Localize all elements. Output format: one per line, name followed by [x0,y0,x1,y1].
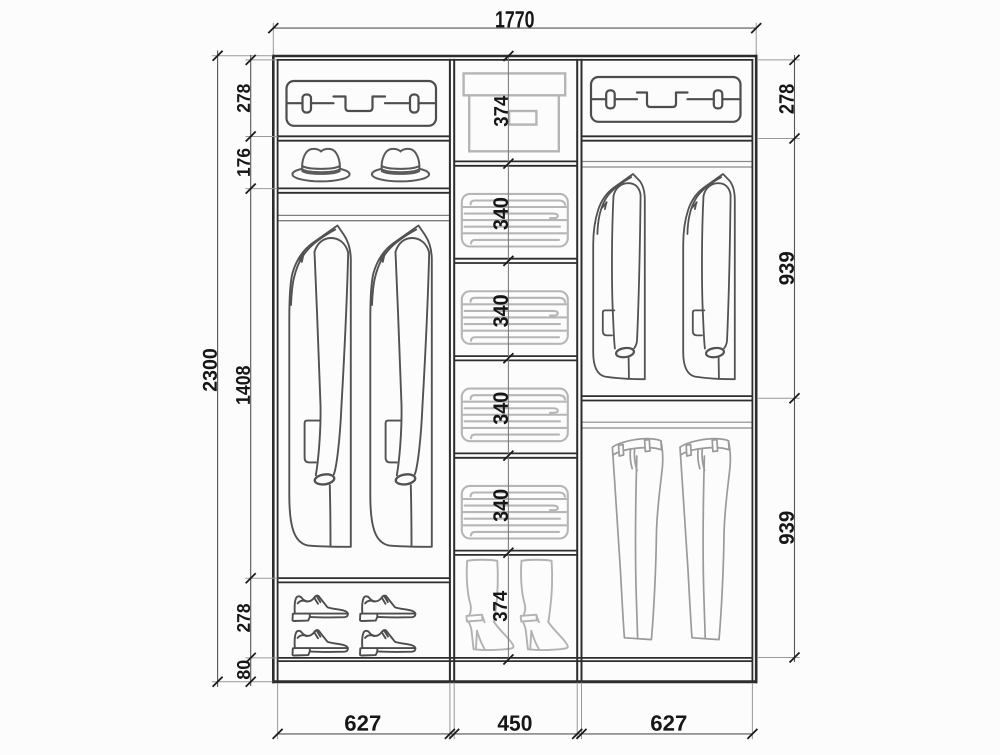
svg-text:374: 374 [491,95,513,127]
svg-text:1770: 1770 [495,6,535,32]
svg-text:627: 627 [650,711,687,736]
svg-text:627: 627 [344,711,381,736]
svg-text:450: 450 [497,711,532,736]
svg-text:1408: 1408 [233,365,255,405]
svg-text:340: 340 [490,489,513,522]
svg-text:939: 939 [776,251,799,285]
svg-text:340: 340 [490,392,513,425]
svg-text:278: 278 [233,603,254,632]
svg-text:278: 278 [776,83,799,114]
svg-text:2300: 2300 [200,348,222,392]
svg-text:80: 80 [233,660,254,680]
svg-text:340: 340 [490,294,513,327]
svg-text:374: 374 [490,590,512,622]
svg-text:278: 278 [233,84,254,113]
svg-text:939: 939 [776,511,799,545]
svg-text:340: 340 [490,197,513,230]
svg-text:176: 176 [233,148,254,177]
